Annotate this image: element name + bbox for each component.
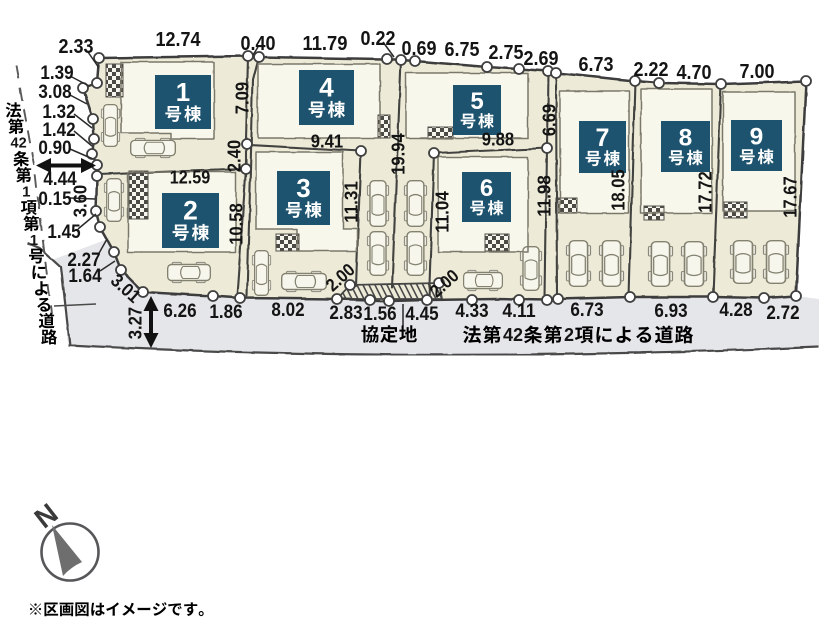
svg-text:6.75: 6.75 (445, 39, 480, 61)
svg-text:17.67: 17.67 (780, 176, 801, 218)
svg-text:0.22: 0.22 (361, 28, 396, 50)
svg-text:6.73: 6.73 (579, 54, 614, 76)
svg-text:9: 9 (750, 124, 764, 151)
svg-text:4.45: 4.45 (405, 304, 439, 325)
svg-text:9.41: 9.41 (311, 131, 343, 152)
svg-text:8.02: 8.02 (271, 300, 304, 321)
svg-text:11.79: 11.79 (303, 33, 348, 55)
svg-text:4.70: 4.70 (677, 62, 712, 84)
svg-text:19.94: 19.94 (388, 133, 409, 175)
svg-text:1.45: 1.45 (47, 222, 81, 243)
svg-text:5: 5 (470, 88, 483, 115)
svg-text:0.90: 0.90 (38, 138, 71, 159)
svg-text:2.40: 2.40 (224, 140, 245, 172)
svg-text:7.00: 7.00 (740, 61, 775, 83)
svg-text:1: 1 (30, 232, 38, 249)
svg-text:18.05: 18.05 (608, 169, 629, 211)
svg-text:10.58: 10.58 (226, 203, 247, 245)
svg-text:3.60: 3.60 (70, 185, 91, 217)
svg-text:7: 7 (596, 124, 610, 152)
svg-text:6.26: 6.26 (163, 301, 196, 322)
svg-text:1.39: 1.39 (40, 63, 73, 84)
svg-text:0.69: 0.69 (402, 38, 437, 60)
svg-text:4.28: 4.28 (719, 300, 752, 321)
svg-text:1.86: 1.86 (209, 302, 242, 323)
svg-text:9.88: 9.88 (482, 129, 514, 150)
svg-text:6: 6 (480, 175, 493, 202)
svg-text:11.04: 11.04 (432, 191, 453, 233)
svg-text:6.69: 6.69 (539, 104, 560, 136)
svg-text:42: 42 (503, 325, 523, 345)
svg-text:4.11: 4.11 (502, 301, 536, 322)
svg-text:1: 1 (22, 183, 30, 200)
svg-text:11.31: 11.31 (341, 181, 362, 223)
svg-text:3.08: 3.08 (38, 82, 71, 103)
svg-text:4: 4 (319, 73, 334, 103)
svg-text:12.59: 12.59 (170, 168, 211, 188)
svg-text:12.74: 12.74 (156, 29, 202, 51)
svg-text:4.33: 4.33 (455, 301, 488, 322)
svg-text:1: 1 (176, 79, 190, 107)
svg-text:2.75: 2.75 (489, 42, 524, 64)
svg-text:8: 8 (679, 125, 693, 152)
svg-text:1.64: 1.64 (68, 266, 102, 287)
svg-text:2.33: 2.33 (59, 36, 94, 58)
svg-text:2: 2 (183, 196, 198, 226)
svg-text:6.93: 6.93 (654, 301, 687, 322)
svg-text:7.09: 7.09 (232, 82, 253, 114)
svg-text:1.56: 1.56 (363, 304, 396, 325)
svg-text:0.15: 0.15 (38, 189, 72, 210)
svg-text:2.72: 2.72 (766, 303, 799, 324)
svg-text:11.98: 11.98 (534, 175, 555, 217)
svg-text:2: 2 (564, 325, 574, 345)
svg-text:2.22: 2.22 (634, 59, 669, 81)
svg-text:3: 3 (296, 175, 310, 203)
svg-text:17.72: 17.72 (695, 171, 716, 213)
svg-text:6.73: 6.73 (570, 300, 603, 321)
svg-text:3.27: 3.27 (125, 307, 146, 339)
svg-text:2.83: 2.83 (329, 303, 362, 324)
svg-text:0.40: 0.40 (241, 33, 276, 55)
svg-text:42: 42 (11, 136, 27, 152)
svg-text:2.69: 2.69 (524, 48, 559, 70)
